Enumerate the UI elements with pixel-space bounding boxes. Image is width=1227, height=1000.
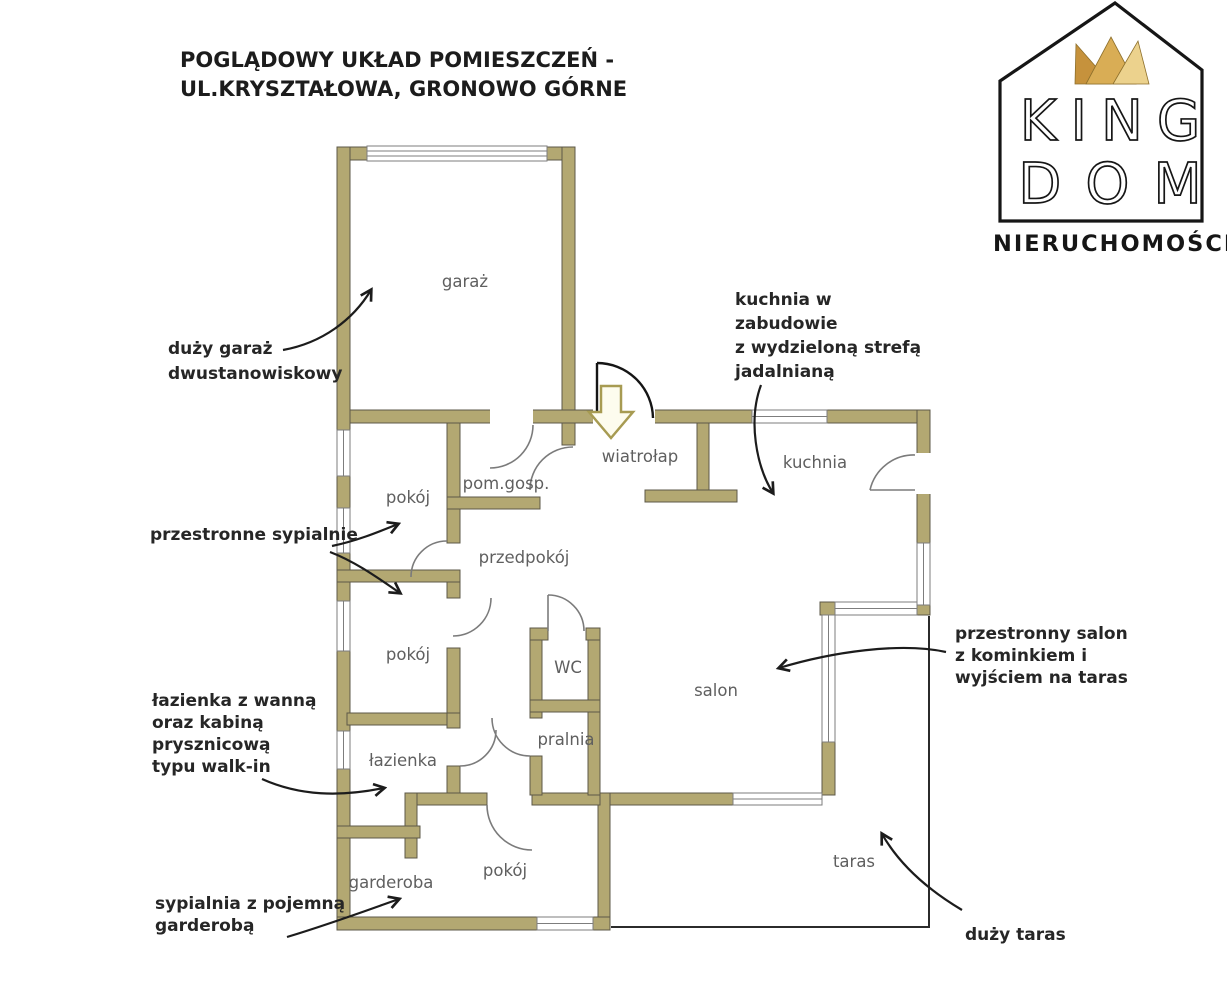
wall	[820, 602, 835, 615]
room-label-taras: taras	[833, 852, 875, 871]
arrow-to-livingroom	[779, 648, 946, 668]
annotation-line: garderobą	[155, 916, 254, 936]
arrow-to-kitchen	[755, 385, 773, 493]
logo-brand-dom: DOM	[1018, 152, 1226, 217]
annotation-bedrooms: przestronne sypialnie	[150, 525, 358, 545]
annotation-terrace: duży taras	[965, 925, 1066, 945]
room-label-garaz: garaż	[442, 272, 488, 291]
door-opening	[915, 453, 932, 494]
annotation-line: przestronny salon	[955, 624, 1128, 644]
annotation-wardrobe: sypialnia z pojemną garderobą	[155, 894, 345, 936]
room-label-wc: WC	[554, 658, 582, 677]
window	[917, 543, 930, 605]
window	[835, 602, 917, 615]
wall	[407, 793, 487, 805]
garage-door-window	[367, 146, 547, 161]
arrow-to-terrace	[882, 834, 962, 910]
room-label-pokoj-2: pokój	[386, 645, 430, 664]
annotation-line: kuchnia w	[735, 290, 832, 310]
wall	[562, 423, 575, 445]
wall	[562, 147, 575, 423]
annotation-line: przestronne sypialnie	[150, 525, 358, 545]
room-label-garderoba: garderoba	[349, 873, 434, 892]
wall	[598, 793, 610, 930]
annotation-line: z kominkiem i	[955, 646, 1087, 666]
wall	[530, 700, 600, 712]
wall	[447, 766, 460, 793]
walls	[337, 147, 930, 930]
annotation-garage: duży garaż dwustanowiskowy	[168, 339, 342, 384]
annotation-line: prysznicową	[152, 735, 271, 755]
door-arc	[453, 598, 491, 636]
terrace-glass-door	[822, 615, 835, 742]
wall	[337, 826, 420, 838]
door-arc	[548, 595, 584, 631]
wall	[586, 628, 600, 640]
arrow-to-garage	[283, 290, 371, 350]
door-arc	[460, 730, 496, 766]
terrace-outline	[611, 616, 929, 927]
room-label-salon: salon	[694, 681, 738, 700]
room-label-wiatrolap: wiatrołap	[602, 447, 678, 466]
room-label-lazienka: łazienka	[369, 751, 437, 770]
window	[733, 793, 822, 805]
window	[337, 601, 350, 651]
wall	[447, 582, 460, 598]
wall	[447, 497, 540, 509]
annotation-texts: duży garaż dwustanowiskowy przestronne s…	[150, 290, 1128, 945]
annotation-line: jadalnianą	[734, 362, 835, 382]
wall	[337, 570, 460, 582]
annotation-line: duży garaż	[168, 339, 273, 359]
door-arc	[487, 805, 532, 850]
annotation-line: sypialnia z pojemną	[155, 894, 345, 914]
annotation-line: duży taras	[965, 925, 1066, 945]
windows	[337, 146, 930, 930]
room-label-pokoj-1: pokój	[386, 488, 430, 507]
logo-brand-king: KING	[1020, 89, 1215, 154]
window	[752, 410, 827, 423]
annotation-bathroom: łazienka z wanną oraz kabiną prysznicową…	[151, 691, 317, 777]
door-arc	[490, 425, 533, 468]
annotation-line: wyjściem na taras	[955, 668, 1128, 688]
door-opening	[490, 409, 533, 424]
annotation-line: typu walk-in	[152, 757, 271, 777]
annotation-line: łazienka z wanną	[151, 691, 317, 711]
entrance-arrow-icon	[589, 386, 633, 438]
room-label-przedpokoj: przedpokój	[479, 548, 570, 567]
wall	[697, 423, 709, 497]
door-arc	[870, 455, 915, 490]
room-label-kuchnia: kuchnia	[783, 453, 847, 472]
annotation-kitchen: kuchnia w zabudowie z wydzieloną strefą …	[734, 290, 921, 382]
annotation-livingroom: przestronny salon z kominkiem i wyjściem…	[955, 624, 1128, 688]
wall	[600, 793, 733, 805]
wall	[645, 490, 737, 502]
annotation-line: dwustanowiskowy	[168, 364, 342, 384]
wall	[822, 742, 835, 795]
wall	[530, 756, 542, 795]
annotation-line: oraz kabiną	[152, 713, 264, 733]
wall	[447, 423, 460, 543]
arrow-to-bathroom	[262, 779, 384, 794]
window	[337, 731, 350, 769]
annotation-line: zabudowie	[735, 314, 838, 334]
wall	[447, 713, 460, 728]
window	[537, 917, 593, 930]
door-arc	[492, 718, 530, 756]
logo-subtitle: NIERUCHOMOŚCI	[993, 229, 1227, 257]
wall	[347, 713, 460, 725]
room-label-pralnia: pralnia	[537, 730, 594, 749]
floorplan-page: POGLĄDOWY UKŁAD POMIESZCZEŃ - UL.KRYSZTA…	[0, 0, 1227, 1000]
room-label-pokoj-3: pokój	[483, 861, 527, 880]
agency-logo: KING DOM NIERUCHOMOŚCI	[960, 0, 1227, 265]
room-label-pom-gosp: pom.gosp.	[463, 474, 550, 493]
window	[337, 430, 350, 476]
wall	[530, 628, 548, 640]
annotation-line: z wydzieloną strefą	[735, 338, 921, 358]
